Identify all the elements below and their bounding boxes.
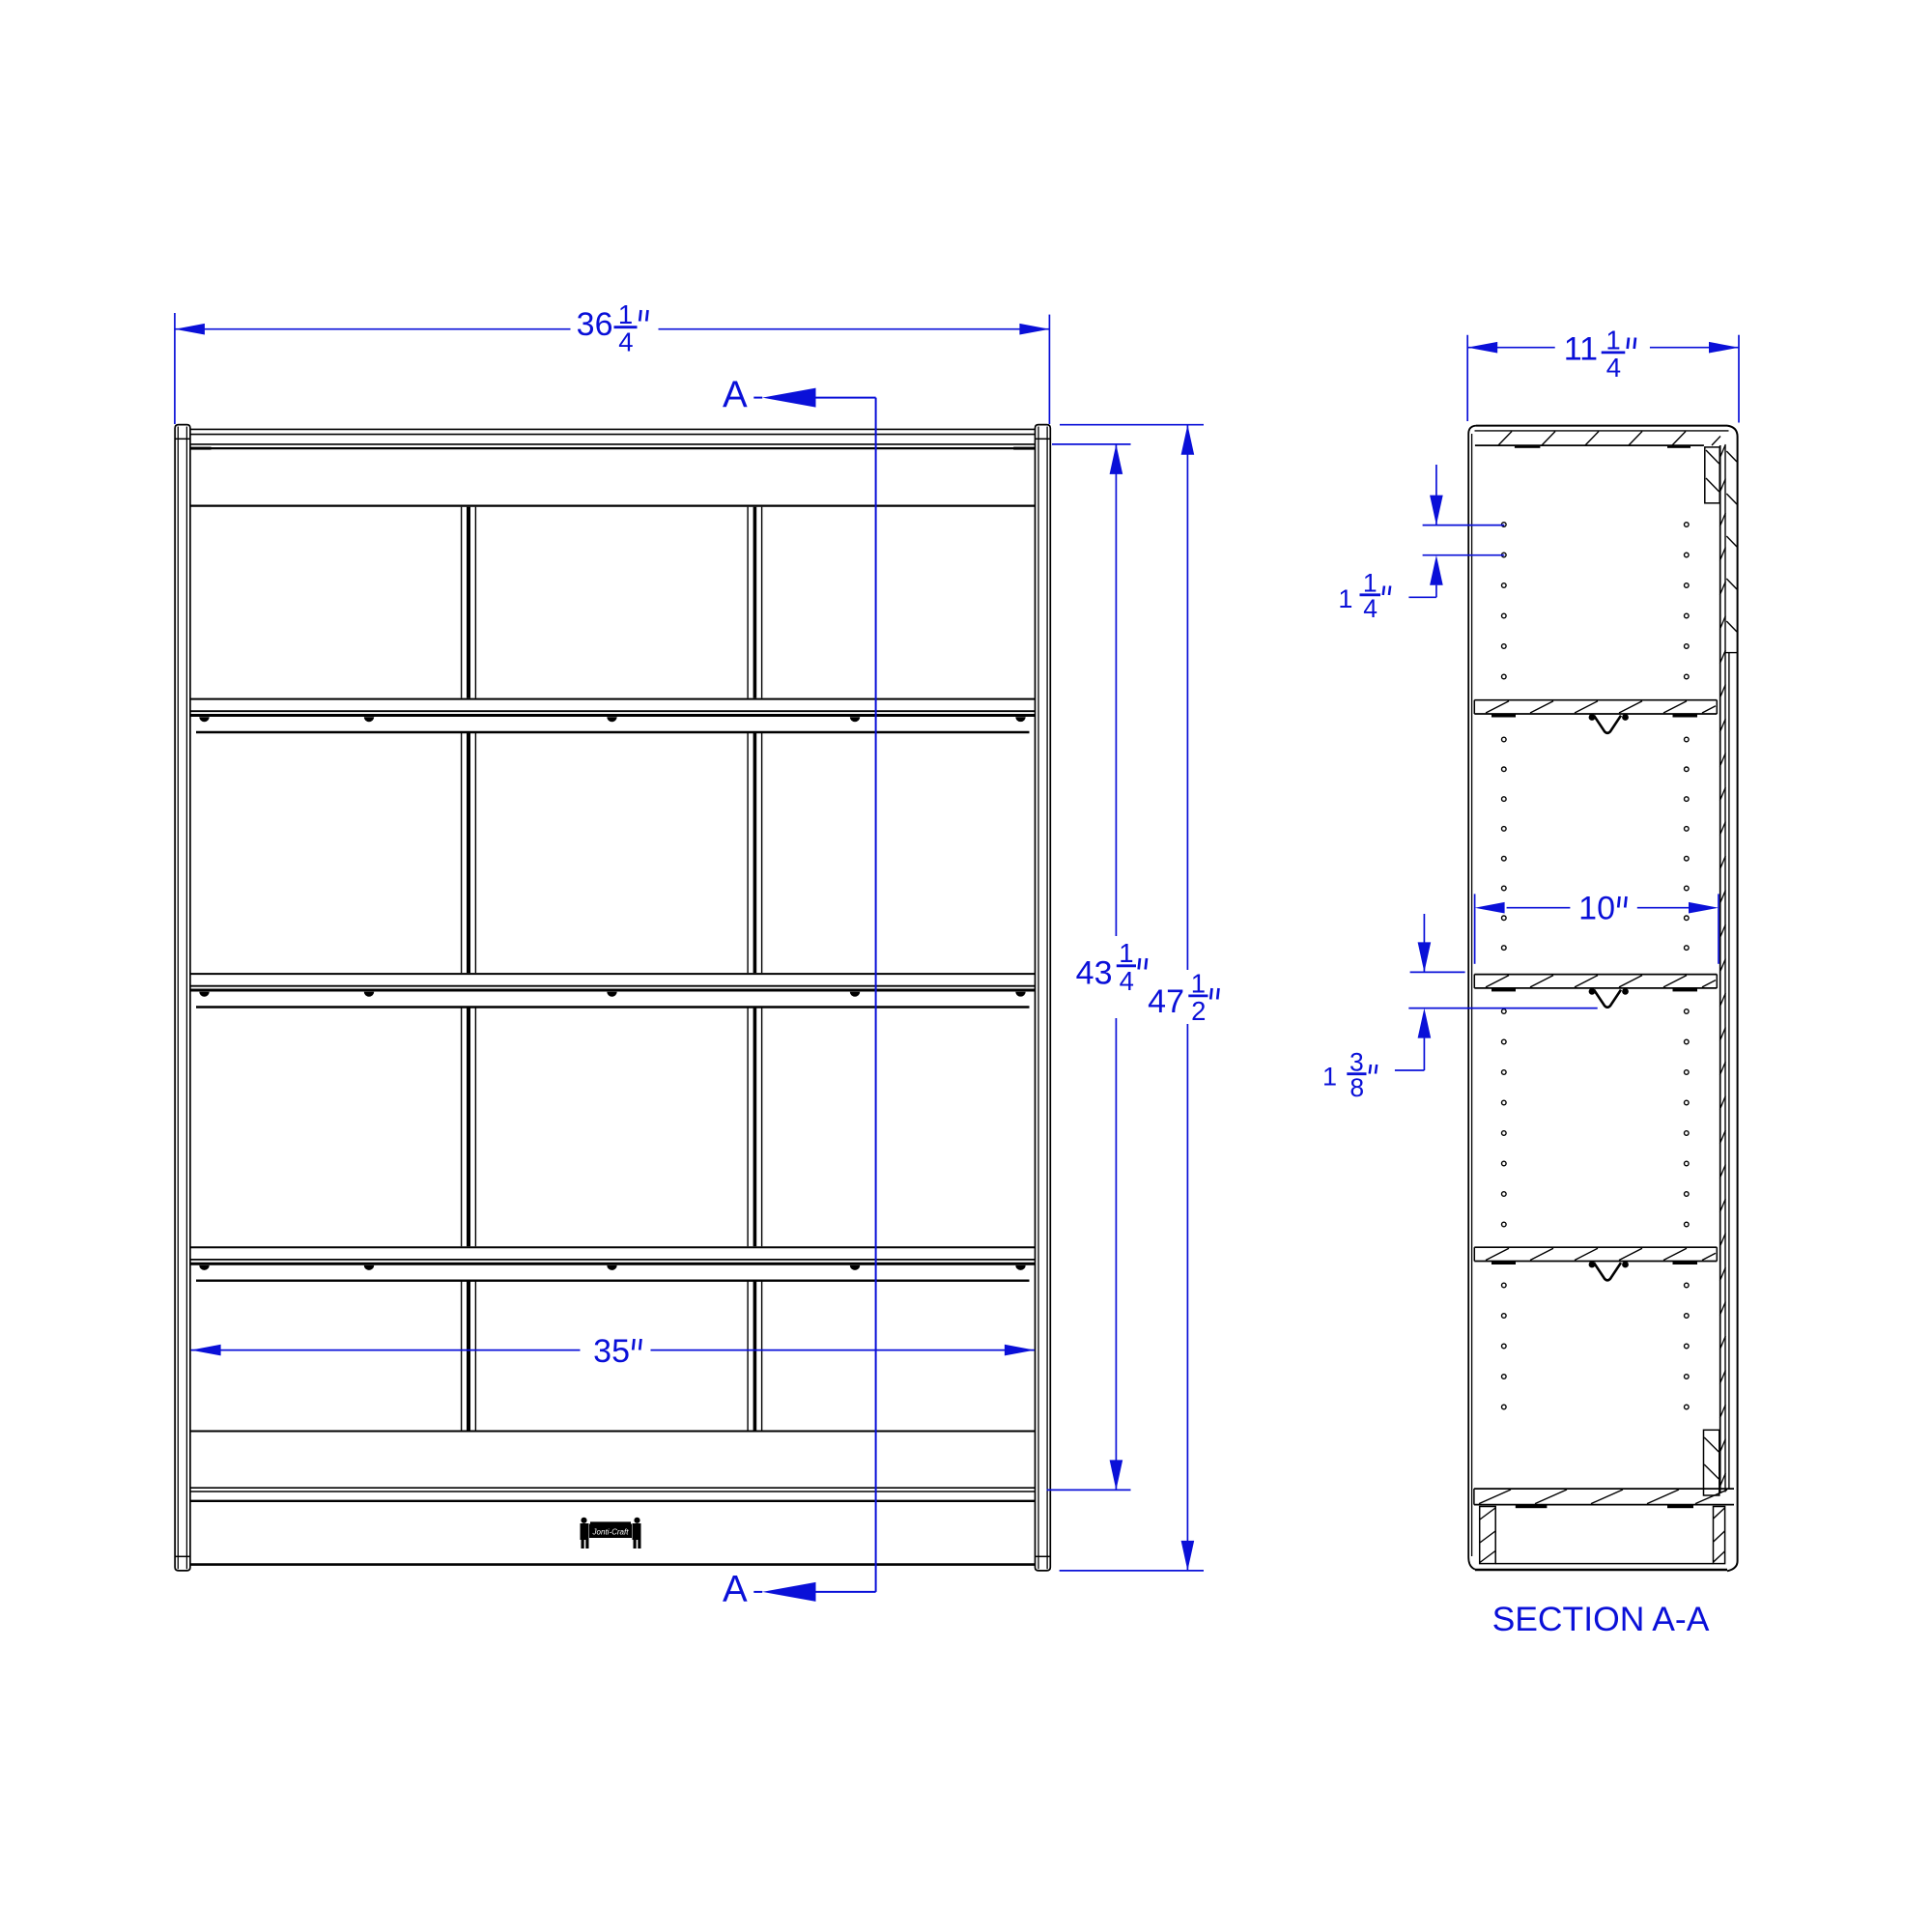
svg-text:1: 1 [1119, 938, 1133, 968]
svg-text:47: 47 [1148, 983, 1184, 1020]
svg-text:1: 1 [1338, 584, 1352, 613]
svg-text:8: 8 [1350, 1073, 1364, 1102]
svg-text:4: 4 [618, 327, 633, 357]
svg-text:43: 43 [1076, 955, 1113, 992]
svg-text:11: 11 [1564, 331, 1598, 368]
svg-text:Jonti-Craft: Jonti-Craft [592, 1528, 630, 1537]
svg-text:3: 3 [1350, 1048, 1364, 1077]
svg-text:A: A [723, 1569, 748, 1610]
svg-text:1: 1 [1191, 968, 1206, 998]
svg-text:1: 1 [1605, 325, 1620, 355]
svg-text:1: 1 [618, 299, 633, 329]
svg-text:36: 36 [577, 306, 613, 343]
svg-text:1: 1 [1322, 1063, 1337, 1092]
svg-text:SECTION A-A: SECTION A-A [1492, 1600, 1710, 1638]
svg-text:A: A [723, 374, 748, 415]
svg-text:4: 4 [1363, 594, 1378, 623]
svg-text:2: 2 [1191, 996, 1206, 1026]
svg-text:4: 4 [1120, 966, 1134, 996]
svg-text:10: 10 [1578, 890, 1615, 926]
svg-text:1: 1 [1363, 569, 1378, 598]
svg-text:4: 4 [1606, 353, 1621, 383]
svg-text:35: 35 [593, 1333, 630, 1370]
